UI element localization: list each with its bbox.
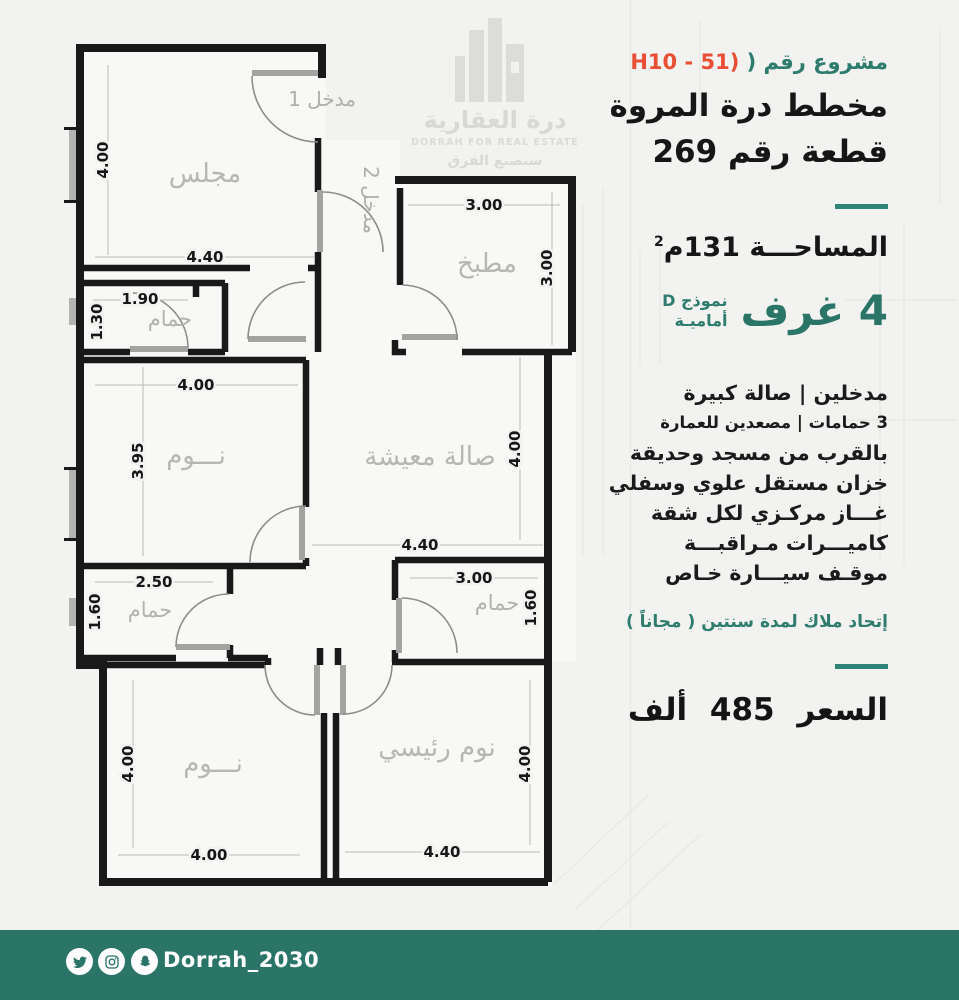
model-line1: نموذج D (662, 291, 727, 311)
instagram-icon[interactable] (98, 948, 125, 975)
feature-item: 3 حمامات | مصعدين للعمارة (609, 408, 888, 438)
hoa-note: إتحاد ملاك لمدة سنتين ( مجاناً ) (626, 612, 888, 632)
dim-bath-br-h: 1.60 (522, 589, 540, 626)
feature-item: مدخلين | صالة كبيرة (609, 378, 888, 408)
price-line: السعر 485 ألف (628, 692, 888, 728)
dim-bath-bl-w: 2.50 (135, 573, 172, 591)
dim-majlis-w: 4.40 (186, 248, 223, 266)
entrance2-label: مدخل 2 (359, 166, 383, 234)
dim-living-w: 4.40 (401, 536, 438, 554)
dim-bath-br-w: 3.00 (455, 569, 492, 587)
area-line: المساحـــة 131م2 (654, 232, 888, 263)
project-code: H10 - 51) (630, 50, 739, 74)
dorrah-watermark: درة العقارية DORRAH FOR REAL ESTATE سنصن… (411, 18, 579, 169)
room-label-bed-bl: نـــوم (183, 749, 243, 779)
plan-title: مخطط درة المروة (610, 88, 888, 124)
twitter-icon[interactable] (66, 948, 93, 975)
feature-item: بالقرب من مسجد وحديقة (609, 438, 888, 468)
area-text: المساحـــة 131م (664, 232, 888, 263)
poster: درة العقارية DORRAH FOR REAL ESTATE سنصن… (0, 0, 959, 1000)
dim-kitchen-h: 3.00 (538, 249, 556, 286)
feature-item: خزان مستقل علوي وسفلي (609, 468, 888, 498)
dim-bed-bl-h: 4.00 (119, 745, 137, 782)
room-label-kitchen: مطبخ (457, 249, 517, 279)
project-prefix: مشروع رقم (764, 50, 888, 74)
rooms-row: 4 غرف نموذج D أماميـة (662, 290, 888, 332)
divider-bottom (835, 664, 888, 669)
plot-number: قطعة رقم 269 (652, 134, 888, 170)
dim-bath-top-w: 1.90 (121, 290, 158, 308)
feature-item: كاميـــرات مـراقبـــة (609, 528, 888, 558)
room-label-living: صالة معيشة (364, 442, 496, 472)
divider-top (835, 204, 888, 209)
feature-item: غـــاز مركـزي لكل شقة (609, 498, 888, 528)
price-unit: ألف (628, 692, 687, 728)
dim-living-h: 4.00 (506, 430, 524, 467)
project-open-paren: ( (747, 50, 757, 74)
watermark-name-en: DORRAH FOR REAL ESTATE (411, 137, 579, 148)
dim-bed-bl-w: 4.00 (190, 846, 227, 864)
dim-majlis-h: 4.00 (94, 141, 112, 178)
snapchat-icon[interactable] (131, 948, 158, 975)
project-number-line: مشروع رقم ( H10 - 51) (630, 50, 888, 74)
rooms-count: 4 غرف (741, 290, 888, 332)
dim-bed-master-w: 4.40 (423, 843, 460, 861)
entrance1-label: مدخل 1 (288, 87, 356, 111)
dim-bed-mid-w: 4.00 (177, 376, 214, 394)
watermark-tagline: سنصنع الفرق (448, 153, 543, 169)
model-line2: أماميـة (662, 311, 727, 331)
features-list: مدخلين | صالة كبيرة 3 حمامات | مصعدين لل… (609, 378, 888, 588)
room-label-bed-master: نوم رئيسي (378, 733, 496, 763)
price-value: 485 (710, 692, 775, 728)
room-label-bath-bl: حمام (128, 598, 173, 622)
room-label-majlis: مجلس (169, 159, 241, 189)
room-label-bath-br: حمام (475, 591, 520, 615)
dim-bath-bl-h: 1.60 (86, 593, 104, 630)
social-handle: Dorrah_2030 (163, 948, 319, 972)
dim-bath-top-h: 1.30 (88, 303, 106, 340)
room-label-bed-mid: نـــوم (166, 441, 226, 471)
room-label-bath-top: حمام (148, 307, 193, 331)
watermark-name-ar: درة العقارية (423, 106, 566, 134)
price-label: السعر (797, 692, 888, 728)
model-info: نموذج D أماميـة (662, 291, 727, 331)
feature-item: موقـف سيـــارة خـاص (609, 558, 888, 588)
info-panel: مشروع رقم ( H10 - 51) مخطط درة المروة قط… (630, 0, 959, 930)
floor-plan: درة العقارية DORRAH FOR REAL ESTATE سنصن… (0, 0, 630, 930)
area-superscript: 2 (654, 234, 664, 250)
dim-kitchen-w: 3.00 (465, 196, 502, 214)
dim-bed-master-h: 4.00 (516, 745, 534, 782)
dim-bed-mid-h: 3.95 (129, 442, 147, 479)
